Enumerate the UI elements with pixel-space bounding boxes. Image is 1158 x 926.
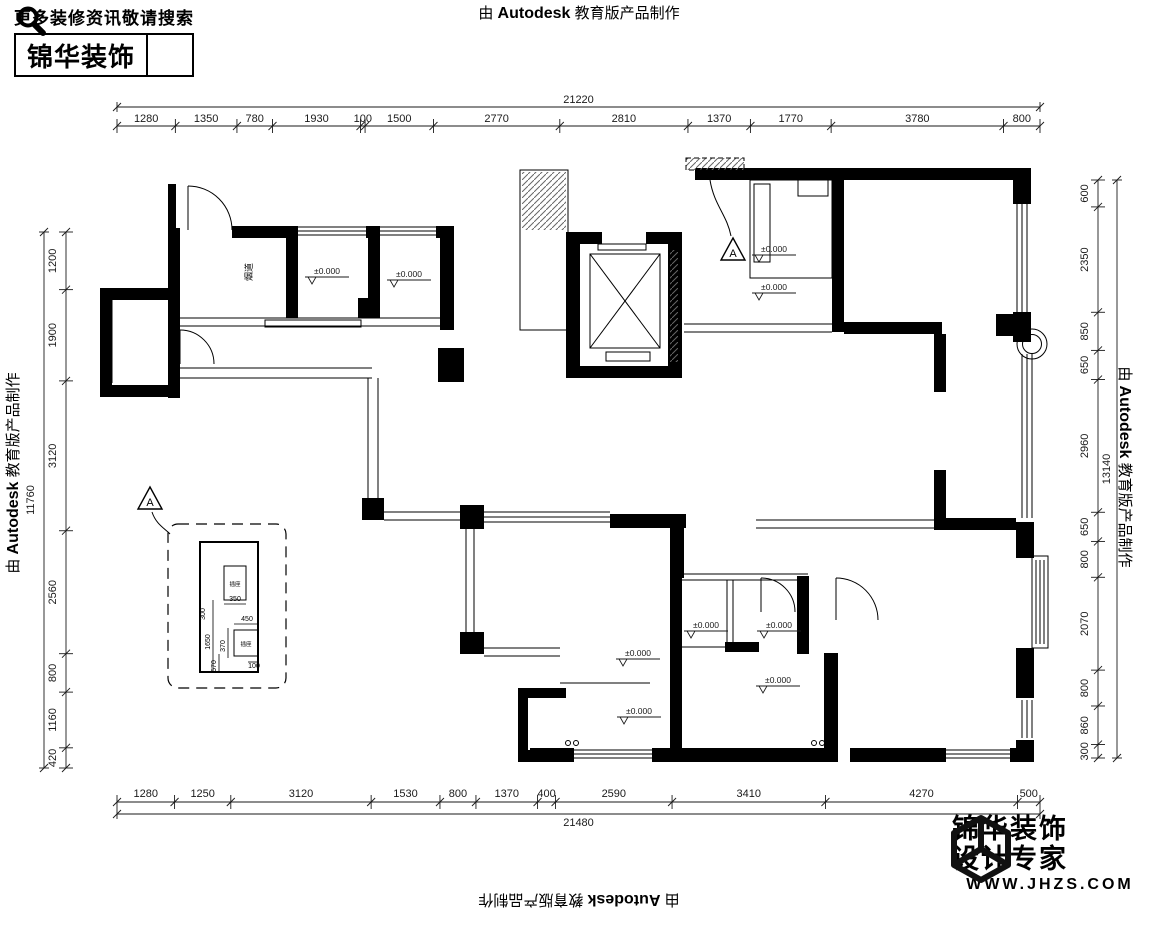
svg-text:300: 300 <box>1079 742 1091 760</box>
detail-box1-label: 插座 <box>229 580 241 588</box>
svg-text:3120: 3120 <box>47 444 59 468</box>
detail-dim-300: 300 <box>200 608 207 620</box>
svg-text:2560: 2560 <box>47 580 59 604</box>
svg-text:3410: 3410 <box>737 788 761 800</box>
svg-text:4270: 4270 <box>909 788 933 800</box>
floor-plan-drawing: A A 烟道 插座 插座 350 300 1650 450 370 570 10… <box>0 0 1158 926</box>
svg-text:800: 800 <box>1079 550 1091 568</box>
svg-text:2960: 2960 <box>1079 434 1091 458</box>
svg-text:2590: 2590 <box>602 788 626 800</box>
svg-text:±0.000: ±0.000 <box>766 620 792 630</box>
svg-text:600: 600 <box>1079 184 1091 202</box>
svg-text:13140: 13140 <box>1101 454 1113 485</box>
dimension-strips: 1280135078019301001500277028101370177037… <box>25 94 1122 829</box>
svg-text:800: 800 <box>47 664 59 682</box>
svg-text:±0.000: ±0.000 <box>765 675 791 685</box>
svg-text:2770: 2770 <box>484 113 508 125</box>
svg-text:1200: 1200 <box>47 249 59 273</box>
svg-text:2350: 2350 <box>1079 247 1091 271</box>
svg-text:650: 650 <box>1079 356 1091 374</box>
svg-text:500: 500 <box>1020 788 1038 800</box>
svg-text:±0.000: ±0.000 <box>761 282 787 292</box>
svg-text:1370: 1370 <box>707 113 731 125</box>
svg-text:1900: 1900 <box>47 323 59 347</box>
svg-text:1500: 1500 <box>387 113 411 125</box>
svg-text:800: 800 <box>449 788 467 800</box>
svg-text:21220: 21220 <box>563 94 594 106</box>
svg-text:780: 780 <box>246 113 264 125</box>
svg-text:800: 800 <box>1079 679 1091 697</box>
svg-text:21480: 21480 <box>563 817 594 829</box>
svg-text:1280: 1280 <box>134 788 158 800</box>
detail-dim-370: 370 <box>220 640 227 652</box>
svg-text:±0.000: ±0.000 <box>693 620 719 630</box>
svg-text:±0.000: ±0.000 <box>625 648 651 658</box>
svg-text:1160: 1160 <box>47 708 59 732</box>
detail-dim-1650: 1650 <box>205 634 212 650</box>
detail-box2-label: 插座 <box>240 640 252 648</box>
svg-text:3780: 3780 <box>905 113 929 125</box>
svg-text:1530: 1530 <box>393 788 417 800</box>
detail-dim-100: 100 <box>248 663 260 670</box>
svg-text:1280: 1280 <box>134 113 158 125</box>
svg-text:1370: 1370 <box>495 788 519 800</box>
detail-marker-a-top: A <box>729 248 737 260</box>
svg-text:±0.000: ±0.000 <box>314 266 340 276</box>
svg-text:860: 860 <box>1079 716 1091 734</box>
svg-text:3120: 3120 <box>289 788 313 800</box>
detail-dim-570: 570 <box>211 660 218 672</box>
svg-text:800: 800 <box>1013 113 1031 125</box>
svg-text:100: 100 <box>354 113 372 125</box>
svg-text:400: 400 <box>537 788 555 800</box>
detail-dim-350: 350 <box>229 596 241 603</box>
hatch-areas <box>522 158 744 362</box>
svg-text:2070: 2070 <box>1079 611 1091 635</box>
svg-text:1930: 1930 <box>304 113 328 125</box>
svg-text:1770: 1770 <box>779 113 803 125</box>
svg-text:2810: 2810 <box>612 113 636 125</box>
floorplan-sheet: 由 Autodesk 教育版产品制作 由 Autodesk 教育版产品制作 由 … <box>0 0 1158 926</box>
svg-text:1350: 1350 <box>194 113 218 125</box>
detail-marker-a-left: A <box>146 497 154 509</box>
svg-text:850: 850 <box>1079 322 1091 340</box>
svg-text:1250: 1250 <box>190 788 214 800</box>
svg-text:650: 650 <box>1079 518 1091 536</box>
svg-text:±0.000: ±0.000 <box>761 244 787 254</box>
svg-text:±0.000: ±0.000 <box>626 706 652 716</box>
detail-dim-450: 450 <box>241 616 253 623</box>
svg-text:±0.000: ±0.000 <box>396 269 422 279</box>
detail-a-callout <box>168 524 286 688</box>
flue-label: 烟道 <box>243 263 254 281</box>
svg-text:11760: 11760 <box>25 485 37 515</box>
svg-text:420: 420 <box>47 749 59 767</box>
